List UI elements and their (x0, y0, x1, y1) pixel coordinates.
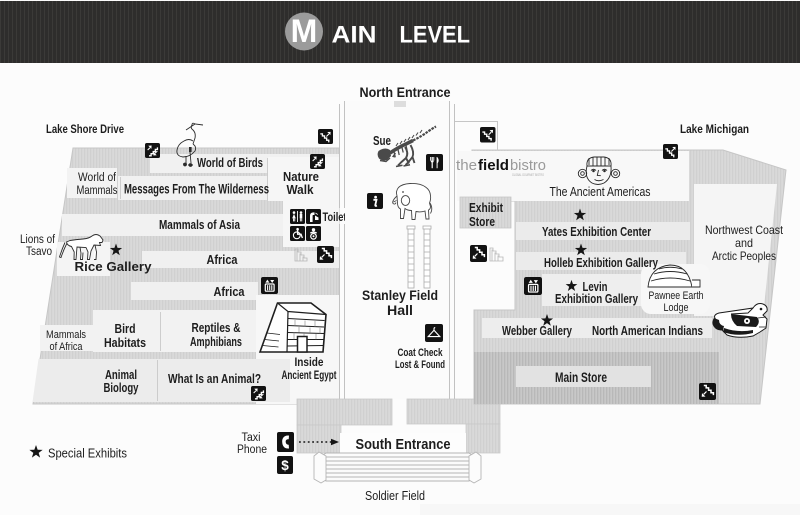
svg-text:Habitats: Habitats (104, 336, 146, 350)
svg-text:Walk: Walk (287, 183, 314, 197)
svg-text:Rice Gallery: Rice Gallery (75, 259, 153, 274)
svg-text:Hall: Hall (387, 302, 413, 318)
svg-text:Taxi: Taxi (242, 432, 261, 444)
svg-text:Pawnee Earth: Pawnee Earth (649, 290, 704, 302)
svg-text:Stanley Field: Stanley Field (362, 287, 438, 303)
svg-text:Animal: Animal (105, 368, 137, 382)
svg-text:Lions of: Lions of (20, 234, 56, 246)
svg-text:Coat Check: Coat Check (398, 347, 444, 359)
svg-text:Yates Exhibition Center: Yates Exhibition Center (542, 224, 651, 239)
svg-text:GLOBAL GOURMET BISTRO: GLOBAL GOURMET BISTRO (512, 173, 544, 177)
svg-text:field: field (478, 158, 509, 174)
svg-text:Store: Store (469, 215, 495, 229)
svg-text:Nature: Nature (283, 170, 319, 184)
svg-text:Lake Michigan: Lake Michigan (680, 122, 749, 136)
svg-text:Exhibit: Exhibit (469, 201, 504, 215)
svg-text:Bird: Bird (115, 322, 136, 336)
svg-text:Toilet: Toilet (323, 212, 347, 224)
svg-text:bistro: bistro (510, 158, 546, 174)
svg-text:the: the (456, 158, 477, 174)
svg-text:Mammals of Asia: Mammals of Asia (159, 217, 241, 232)
svg-text:Ancient Egypt: Ancient Egypt (282, 370, 337, 382)
svg-text:Biology: Biology (104, 381, 139, 395)
svg-text:World of Birds: World of Birds (197, 155, 263, 170)
svg-text:Arctic Peoples: Arctic Peoples (712, 249, 776, 263)
svg-text:Reptiles &: Reptiles & (192, 321, 241, 335)
svg-text:World of: World of (78, 172, 117, 184)
svg-text:Lodge: Lodge (664, 302, 689, 314)
svg-text:Inside: Inside (295, 357, 324, 369)
svg-text:Lake Shore Drive: Lake Shore Drive (46, 122, 124, 136)
svg-text:Phone: Phone (237, 444, 267, 456)
svg-text:Africa: Africa (207, 252, 239, 267)
svg-text:LEVEL: LEVEL (400, 22, 471, 49)
svg-text:Webber Gallery: Webber Gallery (502, 324, 572, 338)
svg-text:The Ancient Americas: The Ancient Americas (550, 184, 651, 199)
svg-text:Amphibians: Amphibians (190, 335, 242, 349)
svg-text:Tsavo: Tsavo (26, 246, 52, 258)
svg-text:Main Store: Main Store (555, 370, 607, 385)
svg-text:Northwest Coast: Northwest Coast (705, 223, 784, 237)
svg-text:Holleb Exhibition Gallery: Holleb Exhibition Gallery (544, 255, 659, 270)
svg-text:and: and (735, 236, 753, 250)
svg-text:Mammals: Mammals (46, 329, 86, 341)
svg-text:Sue: Sue (373, 133, 391, 148)
svg-text:Exhibition Gallery: Exhibition Gallery (555, 292, 638, 306)
svg-text:North American Indians: North American Indians (592, 324, 703, 338)
svg-text:Messages From The Wilderness: Messages From The Wilderness (124, 182, 269, 197)
svg-text:of Africa: of Africa (50, 341, 84, 353)
svg-text:North Entrance: North Entrance (360, 84, 451, 100)
svg-text:Special Exhibits: Special Exhibits (48, 446, 127, 461)
svg-text:AIN: AIN (332, 22, 377, 49)
svg-text:Soldier Field: Soldier Field (365, 489, 425, 503)
svg-text:What Is an Animal?: What Is an Animal? (168, 372, 261, 386)
svg-text:M: M (291, 13, 318, 49)
svg-text:Lost & Found: Lost & Found (395, 359, 445, 371)
svg-text:South Entrance: South Entrance (356, 436, 451, 453)
svg-text:Africa: Africa (214, 284, 246, 299)
svg-text:Mammals: Mammals (77, 185, 118, 197)
